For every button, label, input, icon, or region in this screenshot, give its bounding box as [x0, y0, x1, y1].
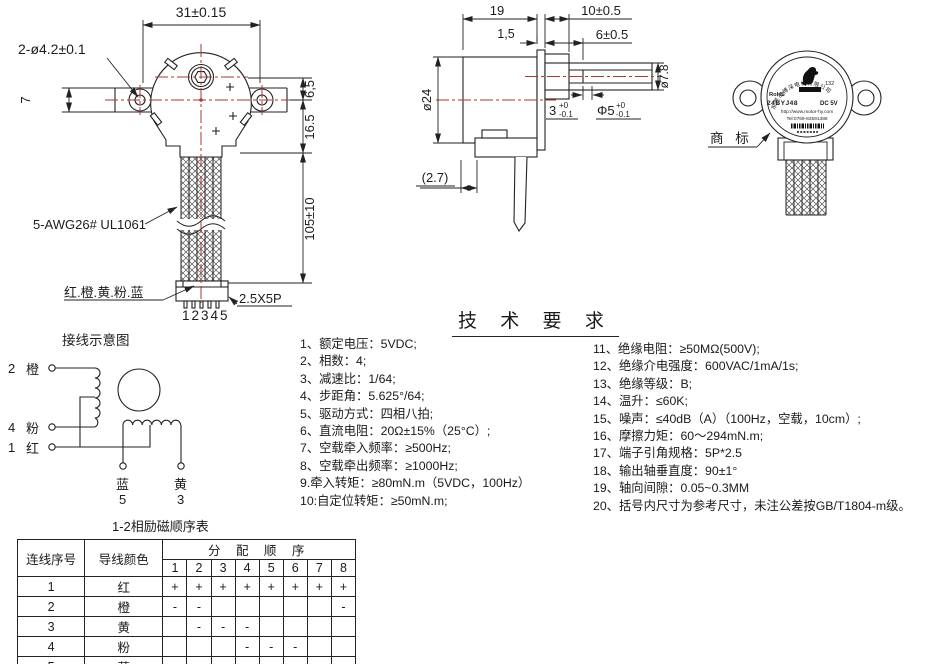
step-header: 3: [211, 560, 235, 577]
tech-item: 10:自定位转矩：≥50mN.m;: [300, 493, 595, 510]
tech-requirements-left: 1、额定电压：5VDC; 2、相数：4; 3、减速比：1/64; 4、步距角：5…: [300, 336, 595, 510]
rear-view: 东莞市博深电机有限公司 132 RoHS 24BYJ48 DC 5V http:…: [678, 20, 930, 240]
connector-spec-label: 2.5X5P: [239, 291, 282, 306]
seq-cell: +: [331, 577, 355, 597]
tech-item: 4、步距角：5.625°/64;: [300, 388, 595, 405]
tech-item: 2、相数：4;: [300, 353, 595, 370]
seq-cell: [259, 617, 283, 637]
front-connector: [176, 281, 228, 308]
seq-cell: [331, 617, 355, 637]
dim-shaft-d: Φ5: [597, 103, 615, 118]
wire-colors-label: 红.橙.黄.粉.蓝: [64, 285, 143, 300]
dim-shaft-d-tol-lo: -0.1: [616, 110, 630, 119]
seq-cell: -: [235, 637, 259, 657]
terminal-4-color: 粉: [26, 421, 39, 436]
seq-cell: -: [211, 617, 235, 637]
rohs-mark: RoHS: [769, 92, 785, 98]
terminal-5-num: 5: [119, 492, 126, 507]
seq-cell: [259, 597, 283, 617]
tech-item: 13、绝缘等级：B;: [593, 376, 930, 393]
tech-item: 19、轴向间隙：0.05~0.3MM: [593, 480, 930, 497]
seq-cell: [235, 597, 259, 617]
dim-step-tol-lo: -0.1: [559, 110, 573, 119]
seq-cell: +: [283, 577, 307, 597]
dim-shaft-len: 10±0.5: [581, 3, 621, 18]
seq-cell: [163, 637, 187, 657]
col-header-wire-no: 连线序号: [18, 540, 85, 577]
step-header: 7: [307, 560, 331, 577]
wiring-diagram: 接线示意图 2 橙 4 粉 1 红 蓝 5 黄 3: [0, 325, 240, 540]
tech-item: 20、括号内尺寸为参考尺寸，未注公差按GB/T1804-m级。: [593, 498, 930, 515]
seq-cell: [283, 597, 307, 617]
seq-cell: +: [235, 577, 259, 597]
dim-step: 3: [549, 103, 556, 118]
terminal-1-num: 1: [8, 440, 15, 455]
tel-label: Tel:0769-82591388: [786, 116, 827, 122]
tech-item: 1、额定电压：5VDC;: [300, 336, 595, 353]
step-header: 5: [259, 560, 283, 577]
dim-step-tol-hi: +0: [559, 101, 569, 110]
seq-cell: -: [283, 637, 307, 657]
terminal-4-num: 4: [8, 420, 15, 435]
seq-cell: [331, 637, 355, 657]
terminal-5-color: 蓝: [116, 477, 129, 492]
terminal-2-color: 橙: [26, 362, 39, 377]
seq-cell: [163, 617, 187, 637]
tech-item: 15、噪声：≤40dB（A）（100Hz，空载，10cm）;: [593, 411, 930, 428]
seq-cell: -: [235, 617, 259, 637]
seq-cell: -: [187, 617, 211, 637]
logo-number: 132: [825, 81, 834, 87]
table-row: 4 粉 - - -: [18, 637, 356, 657]
seq-cell: [163, 657, 187, 664]
step-header: 8: [331, 560, 355, 577]
wire-color: 黄: [85, 617, 163, 637]
seq-cell: +: [163, 577, 187, 597]
wire-no: 2: [18, 597, 85, 617]
step-header: 1: [163, 560, 187, 577]
seq-cell: -: [283, 657, 307, 664]
seq-cell: [307, 637, 331, 657]
terminal-3-color: 黄: [174, 477, 187, 492]
seq-cell: [211, 637, 235, 657]
seq-cell: +: [211, 577, 235, 597]
seq-cell: [307, 617, 331, 637]
trademark-label: 商 标: [710, 131, 753, 146]
table-row: 1 红 + + + + + + + +: [18, 577, 356, 597]
model-number: 24BYJ48: [767, 100, 798, 107]
seq-cell: +: [307, 577, 331, 597]
terminal-3-num: 3: [177, 492, 184, 507]
rotor-circle: [118, 369, 160, 411]
wire-color: 红: [85, 577, 163, 597]
dim-holes: 2-ø4.2±0.1: [18, 41, 86, 57]
seq-cell: +: [187, 577, 211, 597]
dim-bracket-h: 7: [18, 96, 33, 103]
wire-no: 3: [18, 617, 85, 637]
terminal-1-color: 红: [26, 441, 39, 456]
seq-cell: -: [331, 657, 355, 664]
dim-shaft-d-tol-hi: +0: [616, 101, 626, 110]
seq-cell: -: [331, 597, 355, 617]
tech-item: 9.牵入转矩：≥80mN.m（5VDC，100Hz）: [300, 475, 595, 492]
tech-item: 3、减速比：1/64;: [300, 371, 595, 388]
table-row: 5 蓝 - - -: [18, 657, 356, 664]
front-view: 31±0.15 2-ø4.2±0.1 7 6,5 16.5 105±10 5-A…: [0, 0, 340, 335]
tech-item: 8、空载牵出频率：≥1000Hz;: [300, 458, 595, 475]
wire-no: 4: [18, 637, 85, 657]
voltage-label: DC 5V: [820, 101, 838, 107]
tech-item: 18、输出轴垂直度：90±1°: [593, 463, 930, 480]
table-row: 3 黄 - - -: [18, 617, 356, 637]
wire-spec-label: 5-AWG26# UL1061: [33, 217, 146, 232]
tech-item: 17、端子引角规格：5P*2.5: [593, 445, 930, 462]
dim-ref: (2.7): [422, 170, 449, 185]
dim-body-w: 19: [490, 3, 504, 18]
dim-flat-len: 6±0.5: [596, 27, 628, 42]
seq-cell: [187, 657, 211, 664]
wire-no: 1: [18, 577, 85, 597]
dim-shaft-offset: 6,5: [302, 80, 317, 98]
front-wire-bundle: [177, 157, 225, 281]
wiring-title: 接线示意图: [62, 332, 130, 348]
url-label: http://www.motor-hy.com: [781, 109, 833, 115]
seq-cell: [307, 597, 331, 617]
wire-color: 橙: [85, 597, 163, 617]
col-header-sequence: 分 配 顺 序: [163, 540, 356, 560]
dim-plate: 1,5: [497, 27, 514, 41]
sequence-table-title: 1-2相励磁顺序表: [112, 516, 209, 535]
seq-cell: -: [307, 657, 331, 664]
dim-body-d: ø24: [419, 89, 434, 111]
tech-item: 12、绝缘介电强度：600VAC/1mA/1s;: [593, 358, 930, 375]
tech-requirements-title: 技 术 要 求: [452, 306, 619, 337]
tech-item: 5、驱动方式：四相八拍;: [300, 406, 595, 423]
step-header: 2: [187, 560, 211, 577]
seq-cell: -: [259, 637, 283, 657]
wiring-lines: [49, 365, 184, 469]
seq-cell: [211, 657, 235, 664]
seq-cell: -: [163, 597, 187, 617]
seq-cell: [283, 617, 307, 637]
rear-wires: [786, 160, 826, 215]
dim-boss-d: ø7.8: [657, 64, 671, 88]
step-header: 4: [235, 560, 259, 577]
wire-color: 蓝: [85, 657, 163, 664]
step-header: 6: [283, 560, 307, 577]
wire-color: 粉: [85, 637, 163, 657]
technical-drawing-page: 31±0.15 2-ø4.2±0.1 7 6,5 16.5 105±10 5-A…: [0, 0, 930, 664]
tech-item: 11、绝缘电阻：≥50MΩ(500V);: [593, 341, 930, 358]
wire-no: 5: [18, 657, 85, 664]
tech-item: 14、温升：≤60K;: [593, 393, 930, 410]
seq-cell: [259, 657, 283, 664]
pin-numbers-label: 12345: [182, 308, 230, 323]
tech-item: 6、直流电阻：20Ω±15%（25°C）;: [300, 423, 595, 440]
seq-cell: -: [187, 597, 211, 617]
tech-item: 7、空载牵入频率：≥500Hz;: [300, 440, 595, 457]
seq-cell: [187, 637, 211, 657]
tech-requirements-right: 11、绝缘电阻：≥50MΩ(500V); 12、绝缘介电强度：600VAC/1m…: [593, 341, 930, 515]
seq-cell: [211, 597, 235, 617]
col-header-wire-color: 导线颜色: [85, 540, 163, 577]
dim-width-top: 31±0.15: [176, 4, 227, 20]
dim-body-h: 16.5: [302, 114, 317, 139]
dim-wire-len: 105±10: [302, 197, 317, 240]
seq-cell: [235, 657, 259, 664]
tech-item: 16、摩擦力矩：60～294mN.m;: [593, 428, 930, 445]
trademark-callout: 商 标: [708, 131, 770, 147]
side-body: [463, 50, 652, 231]
side-view: 19 1,5 10±0.5 6±0.5 ø24 ø7.8 3 +0 -0.1 Φ…: [408, 0, 675, 245]
terminal-2-num: 2: [8, 361, 15, 376]
sequence-table: 连线序号 导线颜色 分 配 顺 序 1 2 3 4 5 6 7 8 1 红 + …: [17, 539, 356, 664]
seq-cell: +: [259, 577, 283, 597]
table-row: 2 橙 - - -: [18, 597, 356, 617]
